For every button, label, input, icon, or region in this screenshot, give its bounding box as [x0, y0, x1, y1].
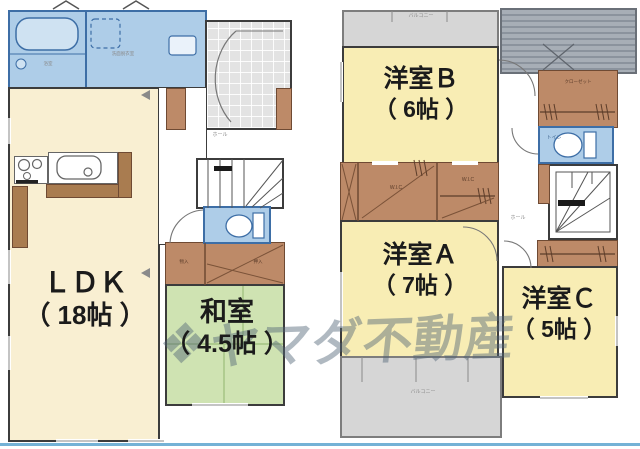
bottom-accent-line: [0, 443, 640, 446]
toilet-room-floor2: [538, 126, 614, 164]
western-room-a: [340, 220, 499, 360]
washitsu-room: [165, 284, 285, 406]
floorplan-image: ＬＤＫ （ 18帖 ） 和室 （ 4.5帖 ） 洋室Ｂ （ 6帖 ） 洋室Ａ （…: [0, 0, 640, 449]
toilet2-door-arc: [512, 128, 538, 154]
western-room-b: [342, 46, 499, 164]
kitchen-side-cabinet: [12, 186, 28, 248]
stairs-floor2: [548, 164, 618, 240]
shoe-cabinet-left: [166, 88, 186, 130]
kitchen-counter-end: [118, 152, 132, 198]
closet-room-right: [538, 70, 618, 128]
shoe-cabinet-right: [276, 88, 292, 130]
stairs-floor1: [196, 158, 284, 209]
ldk-room: [8, 87, 160, 442]
toilet-room-floor1: [203, 206, 271, 244]
stairs-side-cabinet: [538, 164, 550, 204]
closet-room-c: [537, 240, 618, 268]
kitchen-counter: [48, 152, 118, 184]
bathroom: [8, 10, 87, 89]
wic-band: [340, 162, 499, 222]
stove-icon: [14, 156, 48, 184]
window-chevron-icon: [53, 1, 79, 9]
hall2-label: ホール: [500, 216, 536, 221]
roomC-door-arc: [504, 241, 531, 268]
western-room-c: [502, 266, 618, 398]
balcony-top: [342, 10, 499, 48]
washroom: [85, 10, 207, 89]
closet-band-floor1: [165, 242, 285, 286]
roof-area: [500, 8, 637, 74]
window-chevron-icon: [123, 1, 149, 9]
balcony-bottom: [340, 356, 502, 438]
